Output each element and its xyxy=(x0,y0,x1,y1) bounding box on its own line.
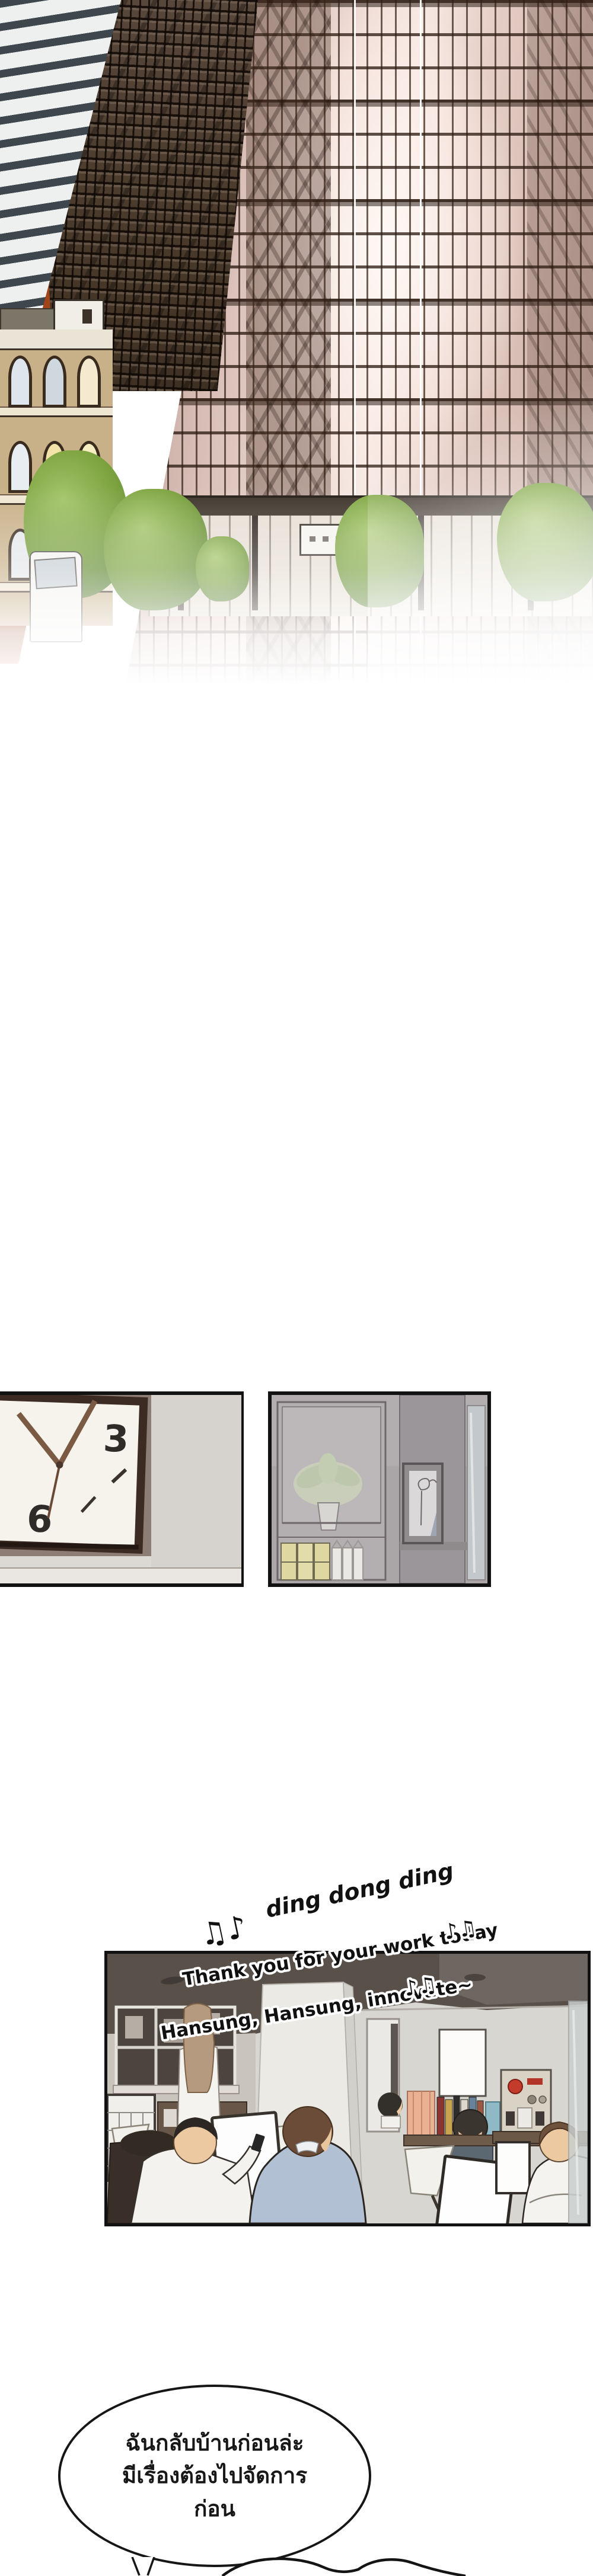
clock-illustration: 3 6 xyxy=(0,1395,241,1583)
white-fade xyxy=(0,486,593,702)
bottom-curve-outline xyxy=(213,2553,477,2576)
song-line-2: Hansung, Hansung, innovate~ ♪♫ xyxy=(141,1986,473,2057)
glass-cabinet xyxy=(278,1402,385,1580)
speech-bubble: ฉันกลับบ้านก่อนล่ะ มีเรื่องต้องไปจัดการ … xyxy=(58,2385,371,2567)
clock-number-6: 6 xyxy=(26,1497,53,1541)
cornice xyxy=(0,407,113,417)
speech-line: ก่อน xyxy=(194,2492,235,2526)
clock-number-3: 3 xyxy=(103,1417,130,1461)
pillar-with-frame xyxy=(400,1395,473,1583)
speech-line: มีเรื่องต้องไปจัดการ xyxy=(122,2459,307,2492)
webtoon-page: 3 6 xyxy=(0,0,593,2576)
arch-window xyxy=(77,356,101,408)
right-glass-wall xyxy=(467,1406,485,1580)
wall-clock: 3 6 xyxy=(0,1396,144,1550)
clock-panel: 3 6 xyxy=(0,1391,244,1587)
interior-illustration xyxy=(272,1395,487,1583)
arch-window xyxy=(8,441,32,493)
speech-line: ฉันกลับบ้านก่อนล่ะ xyxy=(125,2427,304,2460)
arch-window xyxy=(43,356,66,408)
music-notes-icon: ♪♫ xyxy=(442,1916,479,1945)
arch-window xyxy=(8,356,32,408)
interior-panel xyxy=(268,1391,491,1587)
parapet xyxy=(0,329,113,350)
penthouse-window xyxy=(82,309,92,324)
speech-bubble-tail xyxy=(122,2557,163,2576)
city-scene-illustration xyxy=(0,0,593,702)
yellow-binders xyxy=(281,1543,330,1580)
sfx-text: ding dong ding xyxy=(263,1858,456,1923)
monitor xyxy=(496,2142,530,2193)
glass-partition xyxy=(569,2001,588,2223)
worker-back xyxy=(378,2092,403,2128)
music-notes-icon: ♪♫ xyxy=(403,1972,439,2001)
